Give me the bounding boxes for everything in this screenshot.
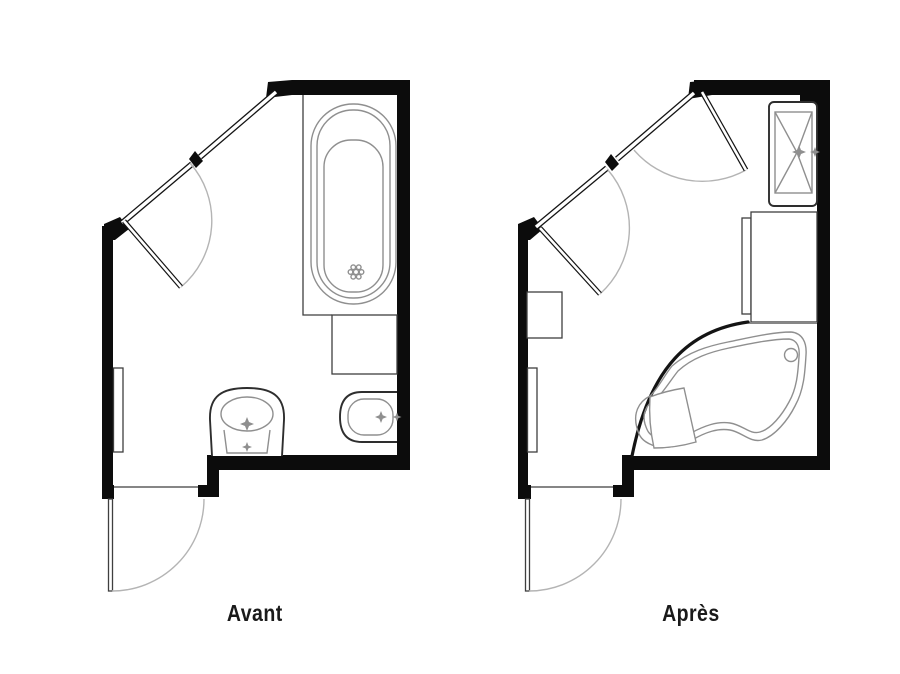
window-pane-glass bbox=[617, 93, 694, 159]
apres-entry-door bbox=[526, 487, 622, 591]
avant-lower-wall-left-stub bbox=[102, 485, 114, 499]
avant-main-bottom-wall bbox=[207, 455, 410, 470]
floor-plans-canvas bbox=[0, 0, 900, 674]
door-leaf-core bbox=[540, 228, 600, 294]
tub-shelf bbox=[332, 315, 397, 374]
plan-apres bbox=[518, 80, 830, 591]
door-swing-arc bbox=[634, 150, 746, 181]
tub-drain-icon bbox=[785, 349, 798, 362]
door-leaf bbox=[526, 499, 530, 591]
door-swing-arc bbox=[529, 499, 621, 591]
drain-center bbox=[353, 269, 358, 274]
apres-left-wall bbox=[518, 226, 528, 499]
door-leaf bbox=[109, 499, 113, 591]
plan-label-apres-text: Après bbox=[662, 600, 720, 627]
window-pane-glass bbox=[122, 164, 192, 223]
apres-corner-bathtub bbox=[632, 322, 817, 456]
apres-lower-wall-right-stub bbox=[613, 485, 634, 497]
drain-petal bbox=[351, 265, 356, 270]
plan-label-avant-text: Avant bbox=[227, 600, 283, 627]
cabinet-body bbox=[751, 212, 817, 322]
avant-lower-wall-right-stub bbox=[198, 485, 219, 497]
cabinet-front-strip bbox=[742, 218, 751, 314]
avant-top-wall bbox=[292, 80, 410, 95]
window-pane-glass bbox=[536, 168, 607, 227]
avant-right-wall bbox=[397, 80, 410, 470]
apres-lower-wall-left-stub bbox=[518, 485, 531, 499]
apres-right-wall bbox=[817, 80, 830, 470]
apres-swing-door-upper bbox=[634, 92, 746, 181]
door-leaf-core bbox=[702, 92, 746, 170]
floor-plan-figure: Avant Après bbox=[0, 0, 900, 674]
plan-avant bbox=[102, 80, 410, 591]
drain-petal bbox=[351, 274, 356, 279]
apres-cabinet bbox=[742, 212, 817, 322]
avant-toilet bbox=[210, 388, 284, 456]
avant-radiator bbox=[114, 368, 124, 452]
bathtub-drain-icon bbox=[348, 265, 364, 279]
door-leaf-core bbox=[124, 221, 181, 287]
apres-radiator bbox=[528, 368, 538, 452]
drain-petal bbox=[356, 274, 361, 279]
avant-bidet bbox=[340, 392, 402, 442]
window-pane-glass bbox=[200, 92, 276, 157]
door-swing-arc bbox=[181, 163, 212, 287]
avant-left-wall bbox=[102, 226, 113, 499]
apres-main-bottom-wall bbox=[622, 455, 830, 470]
drain-petal bbox=[359, 270, 364, 275]
plan-label-apres: Après bbox=[591, 600, 791, 627]
door-swing-arc bbox=[112, 499, 204, 591]
drain-petal bbox=[356, 265, 361, 270]
avant-bathtub bbox=[311, 104, 396, 304]
door-swing-arc bbox=[600, 170, 629, 294]
drain-petal bbox=[348, 270, 353, 275]
apres-storage-unit bbox=[527, 292, 562, 338]
plan-label-avant: Avant bbox=[155, 600, 355, 627]
apres-vanity-sink bbox=[769, 102, 820, 206]
avant-entry-door bbox=[109, 487, 205, 591]
